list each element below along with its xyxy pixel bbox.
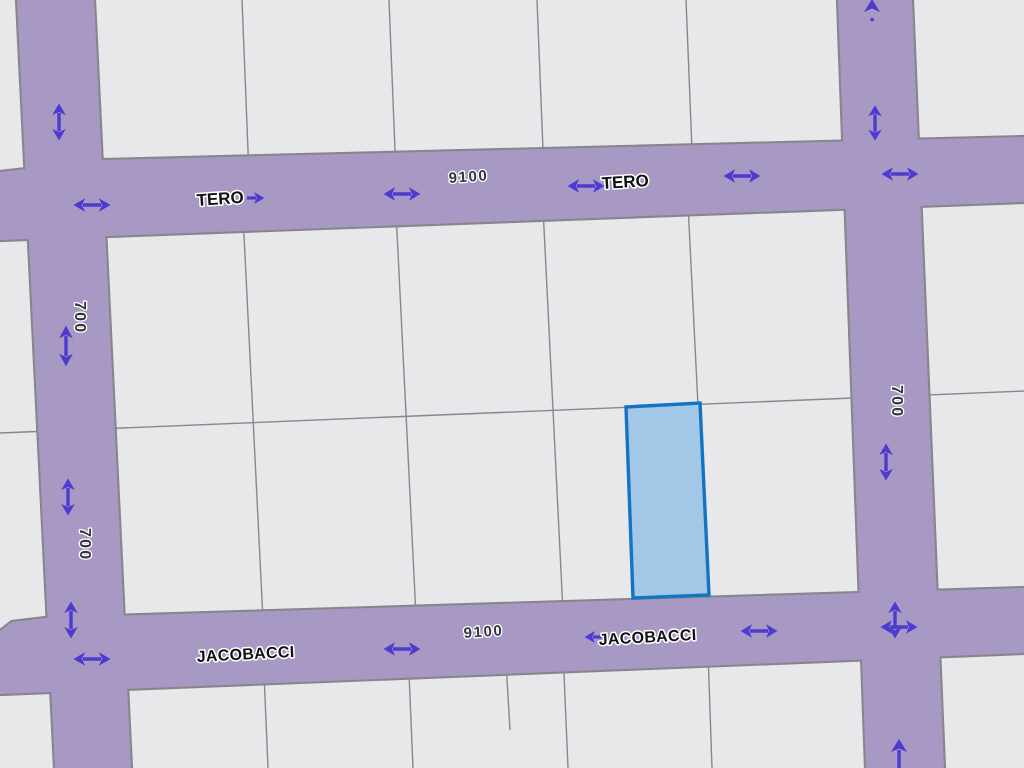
svg-text:TERO: TERO <box>601 171 649 193</box>
svg-text:700: 700 <box>888 385 905 418</box>
svg-text:700: 700 <box>71 301 88 334</box>
svg-text:TERO: TERO <box>196 188 244 210</box>
svg-text:700: 700 <box>76 528 93 561</box>
svg-text:9100: 9100 <box>463 622 504 642</box>
svg-text:9100: 9100 <box>448 167 489 187</box>
